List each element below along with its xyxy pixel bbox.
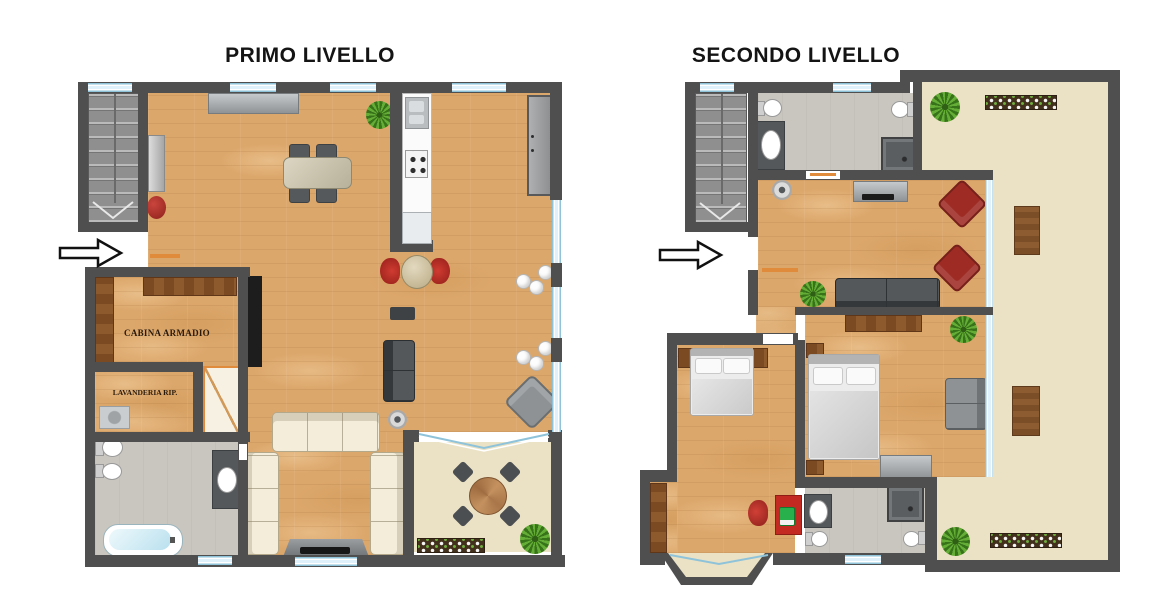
stove [405, 150, 428, 178]
dresser-desk [880, 455, 932, 479]
window [88, 83, 132, 92]
entrance-arrow-icon [58, 236, 124, 270]
wall [640, 470, 650, 565]
glass-wall [552, 200, 561, 432]
pillow [846, 367, 876, 385]
bath-vanity [756, 121, 785, 170]
red-chair [380, 258, 400, 284]
faucet [170, 537, 175, 543]
staircase-divider [114, 94, 116, 203]
plant-icon [950, 316, 977, 343]
wall [551, 430, 562, 567]
second-level-title: SECONDO LIVELLO [636, 44, 956, 68]
sink-basin [409, 115, 424, 124]
stairs-direction-icon [91, 201, 135, 221]
passage-floor [756, 307, 796, 335]
dining-chair [316, 187, 337, 203]
door-threshold [762, 268, 798, 272]
plant-icon [941, 527, 970, 556]
wall [551, 263, 562, 287]
glass-wall [985, 315, 993, 477]
closet-room-label: CABINA ARMADIO [96, 328, 238, 338]
bidet [102, 463, 122, 480]
dark-loveseat [383, 340, 415, 402]
pillow [813, 367, 843, 385]
round-table [401, 255, 433, 289]
sofa [243, 452, 279, 555]
double-bed [808, 354, 880, 460]
glass-wall [985, 180, 993, 307]
shower [887, 486, 924, 522]
plant-icon [800, 281, 826, 307]
pillow [723, 358, 750, 374]
sofa [272, 412, 380, 452]
sofa [370, 452, 406, 555]
window [452, 83, 506, 92]
wall [900, 70, 1120, 82]
staircase [88, 93, 140, 224]
coffee-bench [390, 307, 415, 320]
kitchen-wall-stub [390, 93, 402, 252]
dresser [845, 315, 922, 332]
wall [78, 82, 88, 232]
handle [531, 135, 534, 138]
dark-sofa [835, 278, 940, 310]
closet-wardrobe [95, 277, 114, 365]
headboard [809, 355, 879, 364]
black-panel [248, 276, 262, 367]
sink-basin [409, 101, 424, 112]
door-threshold [150, 254, 180, 258]
plant-icon [930, 92, 960, 122]
laundry-room-label: LAVANDERIA RIP. [94, 388, 196, 397]
wall [193, 362, 203, 440]
dining-table [283, 157, 352, 189]
blanket [692, 379, 752, 414]
dining-chair [289, 187, 310, 203]
plant-icon [520, 524, 550, 554]
wall [667, 333, 677, 482]
wardrobe [650, 483, 667, 553]
wall [748, 270, 758, 315]
wall [551, 338, 562, 362]
flower-planter [985, 95, 1057, 110]
double-bed [690, 348, 754, 416]
bath-vanity [212, 450, 241, 509]
terrace-bench [1012, 386, 1040, 436]
floor-lamp [388, 410, 407, 429]
door-opening [763, 334, 793, 344]
closet-wardrobe [143, 277, 237, 296]
wall [550, 82, 562, 200]
wall [795, 340, 805, 480]
flower-planter [417, 538, 485, 553]
radiator [148, 135, 165, 192]
bathtub-basin [109, 529, 171, 550]
wall [403, 430, 414, 557]
window [700, 83, 734, 92]
plant-icon [366, 101, 393, 129]
sink [809, 500, 828, 524]
wall [85, 432, 250, 442]
bath-vanity [804, 494, 832, 528]
kitchen-sink [405, 97, 429, 129]
staircase-divider [721, 94, 723, 204]
staircase [695, 93, 747, 225]
toilet [763, 99, 782, 117]
red-chair [748, 500, 768, 526]
wall [925, 560, 1120, 572]
window [845, 555, 881, 564]
terrace-bench [1014, 206, 1040, 255]
wall [685, 82, 695, 232]
monitor [862, 194, 894, 200]
wall [138, 93, 148, 232]
pouf [529, 280, 544, 295]
bathtub [103, 524, 183, 557]
headboard [691, 349, 753, 356]
entrance-arrow-icon [658, 238, 724, 272]
red-pouf [147, 196, 166, 219]
veranda-glass-front [417, 431, 551, 453]
tv [300, 547, 350, 554]
floor-plan-canvas: PRIMO LIVELLO SECONDO LIVELLO [0, 0, 1155, 600]
sink [217, 467, 237, 493]
washing-machine [99, 406, 130, 429]
terrace-floor [993, 170, 1108, 477]
window [833, 83, 871, 92]
pillow [695, 358, 722, 374]
handle [531, 149, 534, 152]
door-opening [239, 444, 247, 460]
wall [85, 267, 95, 567]
toilet [811, 531, 828, 547]
wall [913, 82, 922, 170]
nightstand [806, 460, 824, 475]
pouf [529, 356, 544, 371]
flower-planter [990, 533, 1062, 548]
blanket [810, 391, 878, 458]
bay-window-glass [668, 553, 770, 567]
round-dining-table [469, 477, 507, 515]
window [295, 557, 357, 566]
wall [758, 170, 993, 180]
window [330, 83, 376, 92]
first-level-title: PRIMO LIVELLO [145, 44, 475, 68]
stairs-direction-icon [698, 202, 742, 222]
red-chair [430, 258, 450, 284]
sideboard [208, 93, 299, 114]
door-threshold [810, 173, 836, 176]
gray-loveseat [945, 378, 987, 430]
floor-lamp [772, 180, 792, 200]
wall [238, 267, 248, 442]
kitchen-cabinet [402, 212, 432, 244]
sink [761, 130, 781, 160]
wall [1108, 70, 1120, 572]
storage-room [203, 366, 243, 440]
green-chair [779, 507, 795, 526]
wall [795, 307, 993, 315]
window [198, 556, 232, 565]
wall [748, 82, 758, 237]
wall [795, 477, 937, 488]
window [230, 83, 276, 92]
nightstand [753, 348, 768, 368]
wall [85, 362, 203, 372]
